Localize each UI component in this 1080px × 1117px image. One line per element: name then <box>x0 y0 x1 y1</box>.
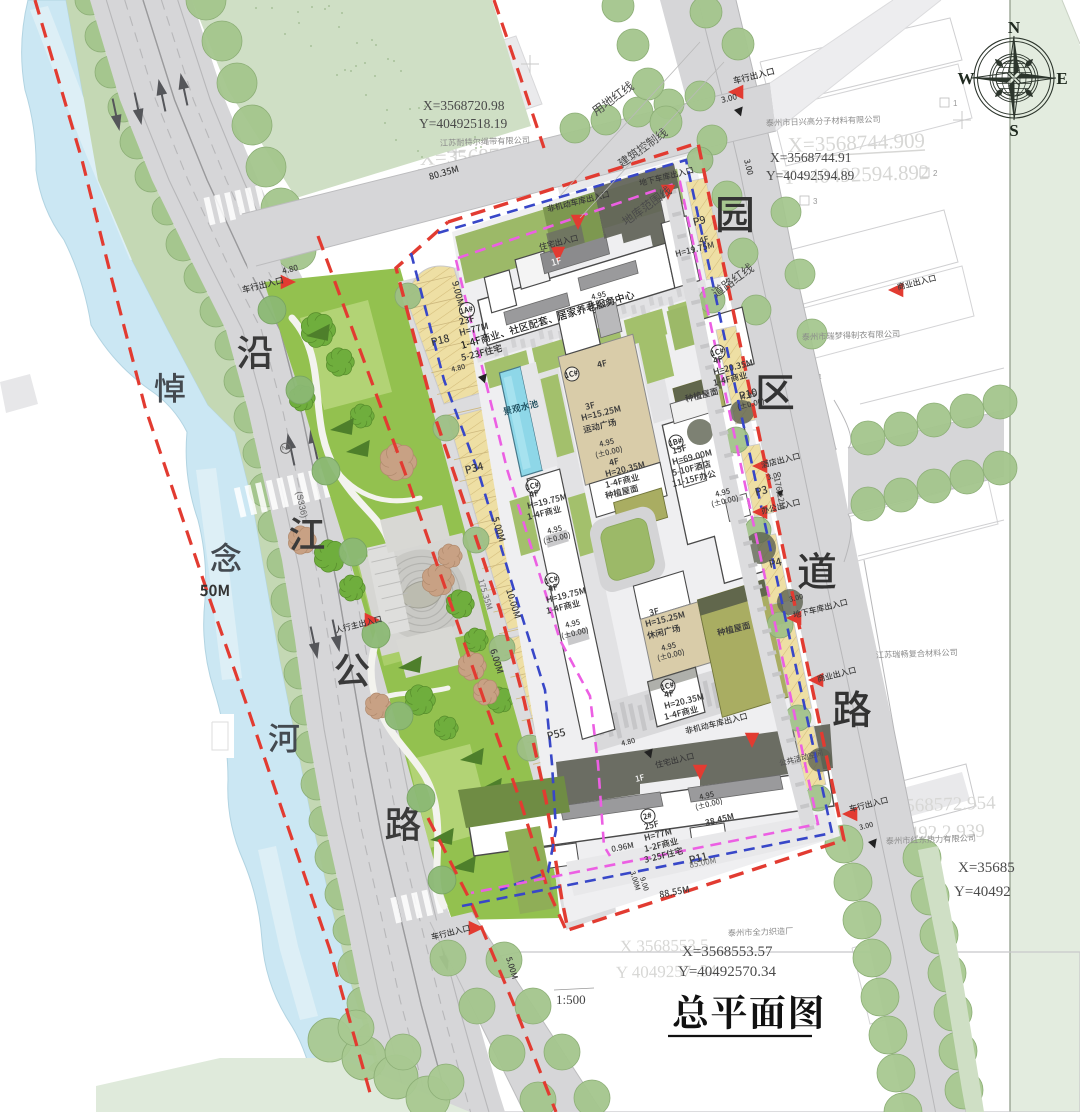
svg-text:Y=40492594.89: Y=40492594.89 <box>766 168 854 183</box>
svg-text:Y=40492518.19: Y=40492518.19 <box>419 116 507 131</box>
svg-text:3: 3 <box>813 197 818 206</box>
svg-text:X=3568744.91: X=3568744.91 <box>770 150 852 165</box>
svg-text:N: N <box>1008 18 1021 37</box>
svg-text:2: 2 <box>933 169 938 178</box>
svg-text:1:500: 1:500 <box>556 992 586 1007</box>
svg-text:X=3568720.98: X=3568720.98 <box>423 98 505 113</box>
svg-text:S: S <box>1009 121 1018 140</box>
svg-text:Y=40492570.34: Y=40492570.34 <box>678 964 777 980</box>
svg-text:X=35685: X=35685 <box>958 860 1015 876</box>
svg-text:X=3568553.57: X=3568553.57 <box>682 944 773 960</box>
svg-text:1: 1 <box>953 99 958 108</box>
svg-text:E: E <box>1056 69 1067 88</box>
svg-text:W: W <box>958 69 975 88</box>
svg-text:Y=40492: Y=40492 <box>954 884 1011 900</box>
